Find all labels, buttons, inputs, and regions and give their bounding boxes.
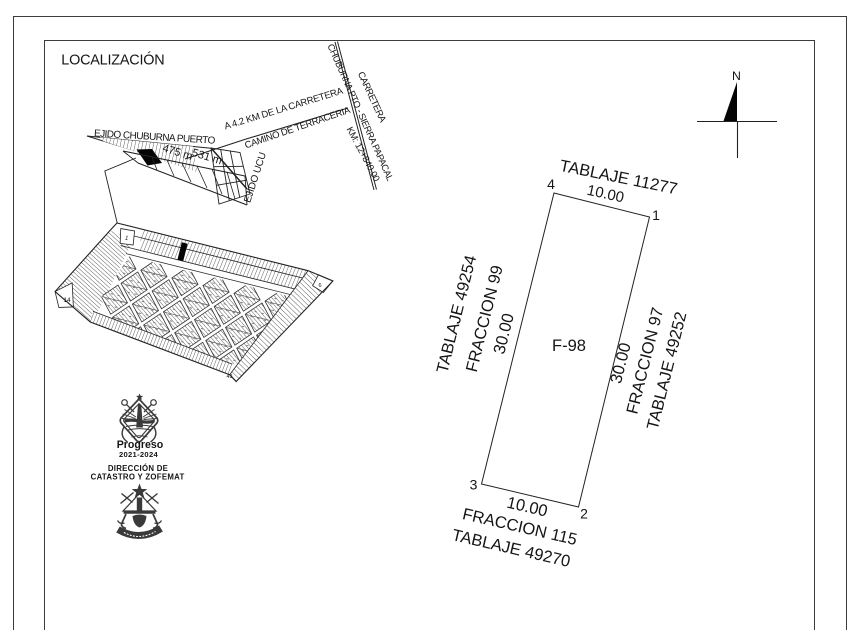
svg-text:CATASTRO Y ZOFEMAT: CATASTRO Y ZOFEMAT — [91, 473, 185, 482]
svg-text:43: 43 — [226, 374, 232, 380]
svg-text:2021-2024: 2021-2024 — [119, 450, 158, 459]
svg-text:LOCALIZACIÓN: LOCALIZACIÓN — [61, 51, 164, 68]
svg-text:F-98: F-98 — [552, 337, 586, 355]
svg-text:4: 4 — [547, 176, 555, 192]
svg-text:N: N — [732, 69, 741, 83]
svg-text:14: 14 — [63, 297, 71, 304]
svg-text:3: 3 — [470, 477, 478, 493]
svg-text:1: 1 — [652, 207, 660, 223]
svg-text:6: 6 — [318, 283, 321, 289]
svg-text:2: 2 — [580, 506, 588, 522]
